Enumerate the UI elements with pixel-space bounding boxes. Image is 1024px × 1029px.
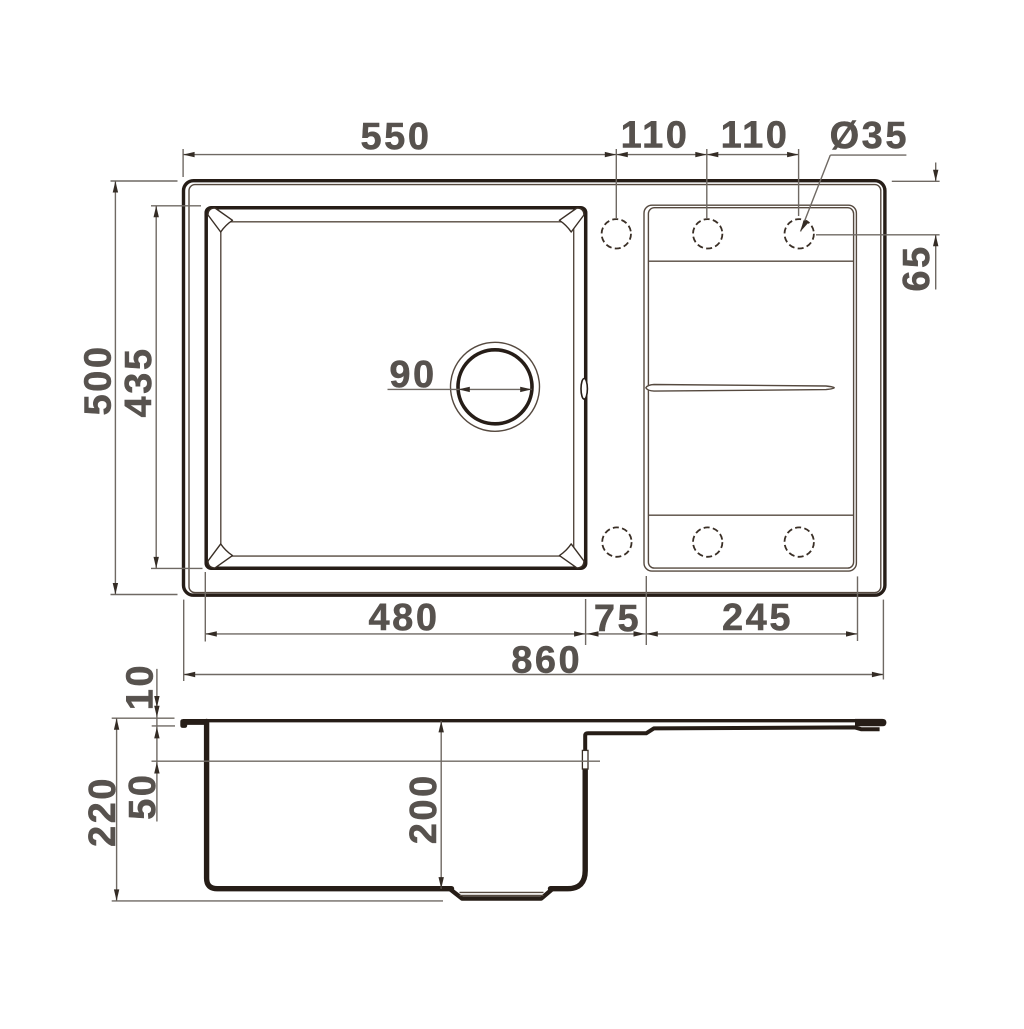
svg-text:480: 480 — [369, 597, 440, 639]
svg-text:75: 75 — [594, 598, 641, 640]
svg-text:65: 65 — [896, 244, 938, 291]
svg-text:220: 220 — [82, 776, 124, 847]
svg-text:110: 110 — [621, 115, 690, 157]
svg-text:50: 50 — [122, 773, 164, 820]
svg-text:245: 245 — [722, 597, 793, 639]
svg-text:Ø35: Ø35 — [830, 115, 909, 157]
svg-text:860: 860 — [511, 640, 582, 682]
svg-text:435: 435 — [118, 347, 160, 418]
svg-text:200: 200 — [403, 773, 445, 844]
svg-text:550: 550 — [361, 116, 432, 158]
svg-text:500: 500 — [78, 345, 120, 416]
svg-text:90: 90 — [389, 354, 436, 396]
svg-text:110: 110 — [721, 115, 790, 157]
svg-text:10: 10 — [119, 663, 161, 710]
